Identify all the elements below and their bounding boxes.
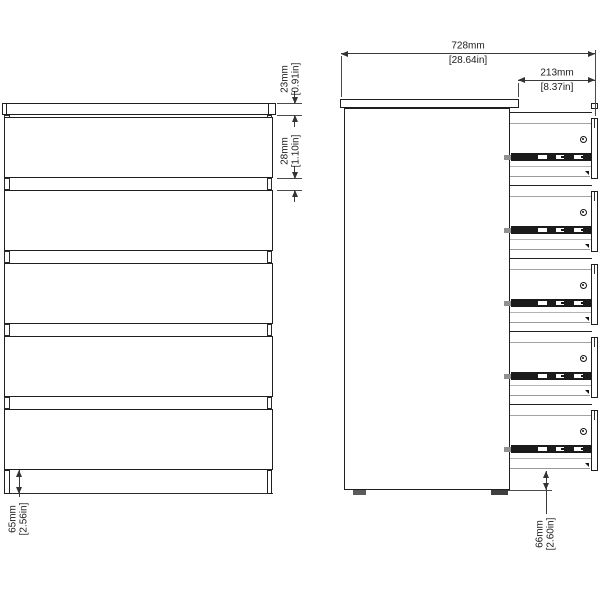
drawer-box-gray-line: [510, 123, 592, 124]
front-side-tab: [4, 178, 10, 189]
dim-drawer-gap-label: 28mm [1.10in]: [281, 135, 302, 168]
drawer-front: [4, 263, 273, 324]
rail-bracket: [504, 447, 511, 452]
dim-floor-clearance-label: 66mm [2.60in]: [536, 518, 557, 551]
front-top-panel-right-tick: [268, 104, 269, 115]
drawer-box-gray-line: [510, 342, 592, 343]
dim-extension-mm: 213mm: [540, 68, 573, 79]
rail-bracket: [504, 301, 511, 306]
dim-in: [2.60in]: [546, 518, 557, 551]
drawer-box-gray-line: [510, 196, 592, 197]
drawer-bottom-arrow-mark: [585, 171, 589, 175]
arrow-down-icon: [292, 97, 298, 104]
drawer-bottom-line: [510, 176, 590, 177]
rail-screw-mark: [581, 229, 584, 231]
cam-lock-icon: [580, 355, 587, 362]
front-side-tab: [267, 324, 273, 335]
drawer-front-profile: [591, 191, 598, 252]
dimension-line: [341, 53, 595, 54]
side-carcass-panel: [344, 108, 510, 490]
rail-bracket: [504, 228, 511, 233]
rail-screw-mark: [581, 448, 584, 450]
witness-line: [277, 115, 302, 116]
rail-slot: [538, 228, 547, 232]
drawer-front-profile: [591, 337, 598, 398]
front-top-panel-left-tick: [6, 104, 7, 115]
drawer-bottom-line: [510, 249, 590, 250]
drawer-bottom-line: [510, 395, 590, 396]
side-back-foot: [353, 490, 366, 495]
drawer-box-top-line: [510, 404, 592, 405]
technical-drawing-canvas: 23mm [0.91in] 28mm [1.10in] 65mm [2.56in…: [0, 0, 600, 600]
rail-bracket: [504, 155, 511, 160]
dim-depth-mm: 728mm: [451, 42, 484, 53]
rail-screw-mark: [561, 156, 564, 158]
drawer-box-gray-line: [510, 415, 592, 416]
side-drawer-unit: [503, 404, 600, 474]
drawer-bottom-thin-line: [510, 458, 592, 459]
witness-line: [277, 178, 302, 179]
front-floor-line: [4, 493, 273, 494]
drawer-slide-rail: [511, 445, 593, 453]
drawer-box-top-line: [510, 112, 592, 113]
arrow-down-icon: [292, 172, 298, 179]
drawer-front: [4, 190, 273, 251]
drawer-slide-rail: [511, 372, 593, 380]
arrow-left-icon: [341, 51, 348, 57]
front-side-tab: [4, 251, 10, 262]
cam-lock-icon: [580, 428, 587, 435]
rail-screw-mark: [581, 375, 584, 377]
arrow-left-icon: [518, 77, 525, 83]
front-side-tab: [267, 178, 273, 189]
drawer-bottom-thin-line: [510, 312, 592, 313]
side-drawer-unit: [503, 258, 600, 328]
cam-lock-icon: [580, 282, 587, 289]
drawer-front: [4, 409, 273, 470]
rail-slot: [538, 301, 547, 305]
drawer-front: [4, 117, 273, 178]
drawer-box-gray-line: [510, 269, 592, 270]
dim-extension-in: [8.37in]: [541, 83, 574, 94]
front-side-tab: [4, 397, 10, 408]
arrow-up-icon: [292, 115, 298, 122]
dim-in: [1.10in]: [291, 135, 302, 168]
dim-mm: 28mm: [281, 135, 292, 168]
rail-bracket: [504, 374, 511, 379]
dim-in: [2.56in]: [19, 503, 30, 536]
side-drawer-unit: [503, 112, 600, 182]
rail-slot: [538, 374, 547, 378]
rail-slot: [538, 155, 547, 159]
drawer-bottom-line: [510, 322, 590, 323]
dim-base-height-label: 65mm [2.56in]: [8, 503, 29, 536]
drawer-bottom-arrow-mark: [585, 244, 589, 248]
drawer-bottom-line: [510, 468, 590, 469]
drawer-front-profile: [591, 264, 598, 325]
cam-lock-icon: [580, 209, 587, 216]
side-top-panel: [340, 99, 519, 109]
witness-line: [277, 190, 302, 191]
dim-mm: 66mm: [536, 518, 547, 551]
arrow-down-icon: [16, 487, 22, 494]
side-drawer-unit: [503, 331, 600, 401]
drawer-bottom-arrow-mark: [585, 317, 589, 321]
dimension-line: [518, 80, 595, 81]
rail-slot: [538, 447, 547, 451]
front-left-leg: [4, 470, 10, 494]
rail-screw-mark: [561, 375, 564, 377]
arrow-right-icon: [588, 77, 595, 83]
dim-in: [0.91in]: [291, 63, 302, 96]
rail-screw-mark: [561, 229, 564, 231]
arrow-up-icon: [16, 470, 22, 477]
rail-screw-mark: [581, 302, 584, 304]
drawer-bottom-thin-line: [510, 166, 592, 167]
drawer-bottom-arrow-mark: [585, 463, 589, 467]
drawer-box-top-line: [510, 331, 592, 332]
drawer-bottom-thin-line: [510, 385, 592, 386]
drawer-box-top-line: [510, 185, 592, 186]
front-side-tab: [267, 397, 273, 408]
dim-mm: 23mm: [281, 63, 292, 96]
arrow-up-icon: [543, 471, 549, 478]
drawer-front-profile: [591, 410, 598, 471]
dim-top-panel-label: 23mm [0.91in]: [281, 63, 302, 96]
drawer-slide-rail: [511, 153, 593, 161]
side-drawer-unit: [503, 185, 600, 255]
witness-line: [518, 83, 519, 97]
drawer-front-profile: [591, 118, 598, 179]
witness-line: [341, 56, 342, 97]
dim-depth-in: [28.64in]: [449, 56, 487, 67]
arrow-down-icon: [543, 483, 549, 490]
front-side-tab: [4, 324, 10, 335]
drawer-bottom-arrow-mark: [585, 390, 589, 394]
drawer-box-top-line: [510, 258, 592, 259]
rail-screw-mark: [561, 302, 564, 304]
drawer-bottom-thin-line: [510, 239, 592, 240]
side-front-foot: [491, 490, 508, 495]
witness-line: [277, 103, 302, 104]
rail-screw-mark: [561, 448, 564, 450]
drawer-slide-rail: [511, 226, 593, 234]
drawer-slide-rail: [511, 299, 593, 307]
front-right-leg: [267, 470, 273, 494]
front-side-tab: [267, 251, 273, 262]
witness-line: [595, 50, 596, 116]
rail-screw-mark: [581, 156, 584, 158]
dim-mm: 65mm: [8, 503, 19, 536]
arrow-up-icon: [292, 190, 298, 197]
drawer-front: [4, 336, 273, 397]
cam-lock-icon: [580, 136, 587, 143]
front-top-panel: [2, 103, 276, 115]
